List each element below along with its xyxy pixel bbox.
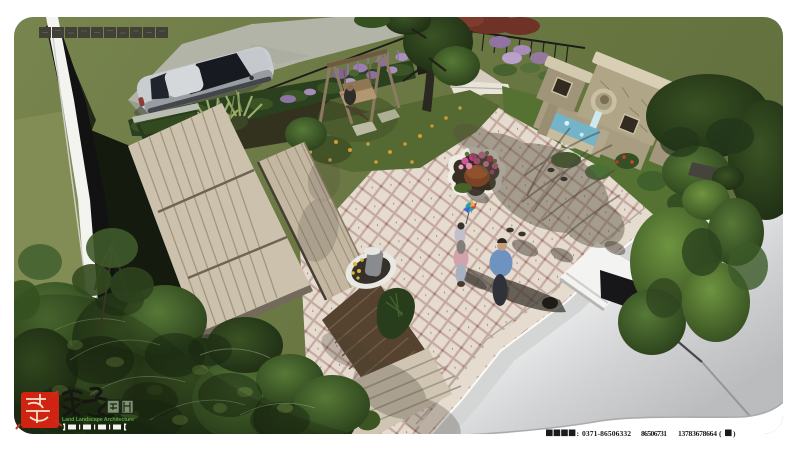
svg-text::: :	[577, 429, 580, 438]
svg-text:86506731: 86506731	[641, 429, 667, 438]
svg-text:13783678664: 13783678664	[678, 429, 717, 438]
svg-text:Land Landscape Architecture: Land Landscape Architecture	[62, 417, 134, 423]
svg-text:0371-86506332: 0371-86506332	[582, 429, 631, 438]
